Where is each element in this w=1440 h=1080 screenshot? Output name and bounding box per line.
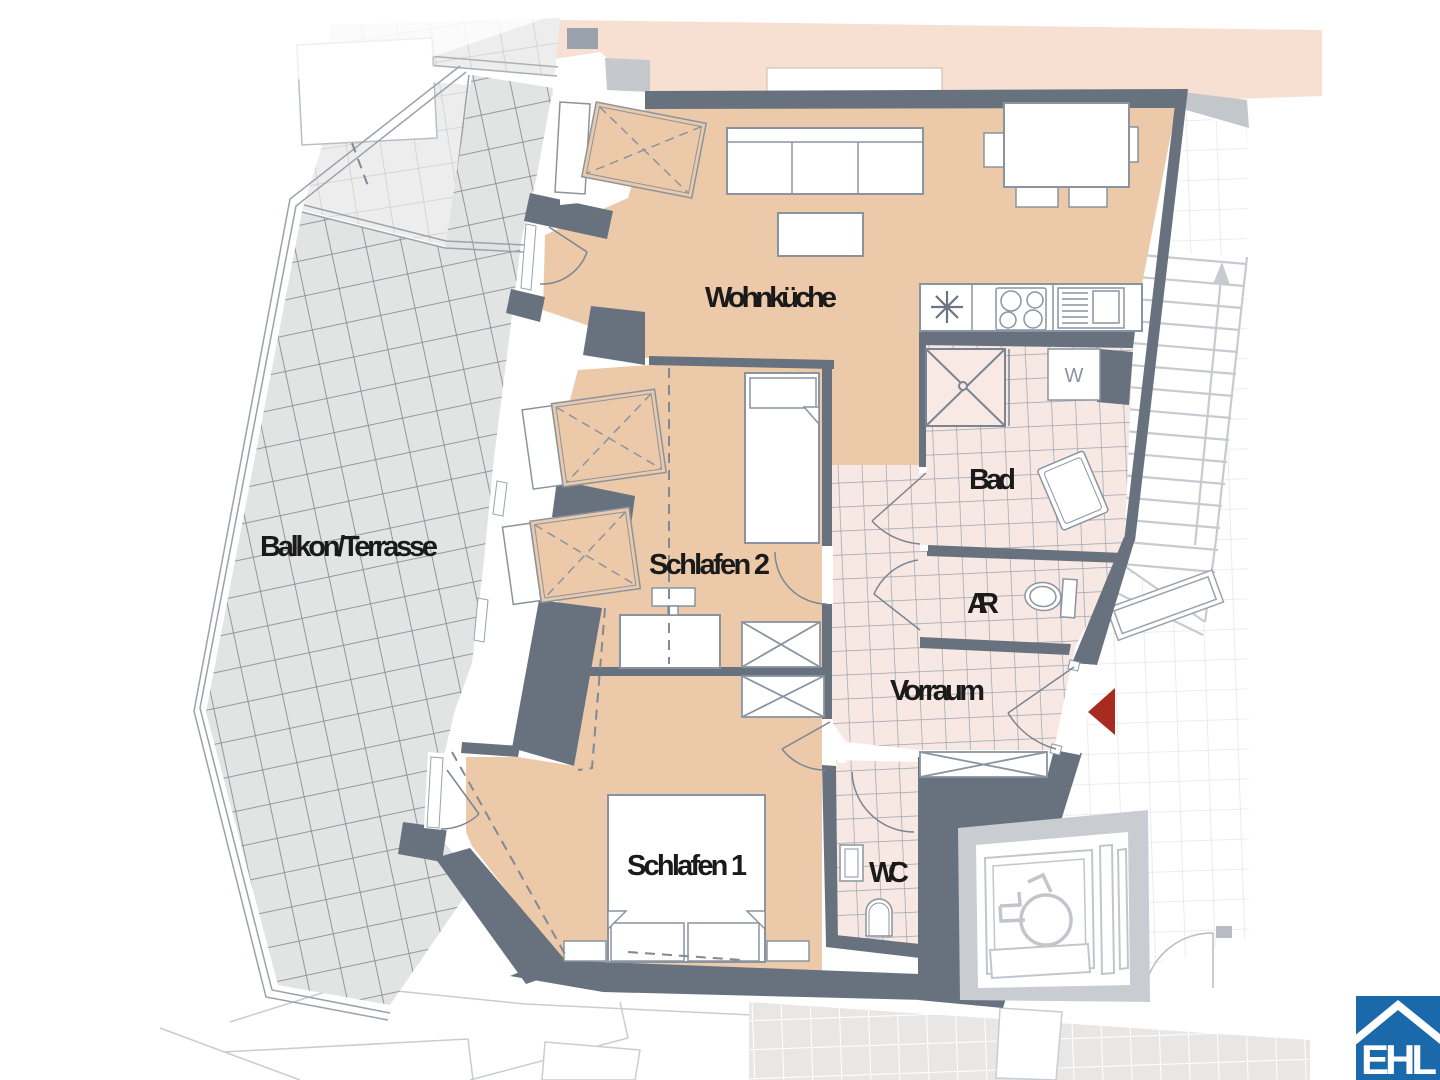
svg-text:WC: WC [869, 857, 909, 889]
svg-text:Vorraum: Vorraum [890, 675, 985, 707]
svg-text:EHL: EHL [1361, 1036, 1437, 1080]
svg-text:Schlafen 2: Schlafen 2 [649, 549, 770, 581]
svg-text:AR: AR [967, 588, 999, 620]
svg-text:Balkon/Terrasse: Balkon/Terrasse [260, 531, 438, 563]
svg-text:Schlafen 1: Schlafen 1 [627, 850, 747, 882]
svg-text:W: W [1065, 365, 1084, 387]
svg-text:Wohnküche: Wohnküche [705, 282, 837, 314]
svg-text:Bad: Bad [969, 464, 1016, 496]
